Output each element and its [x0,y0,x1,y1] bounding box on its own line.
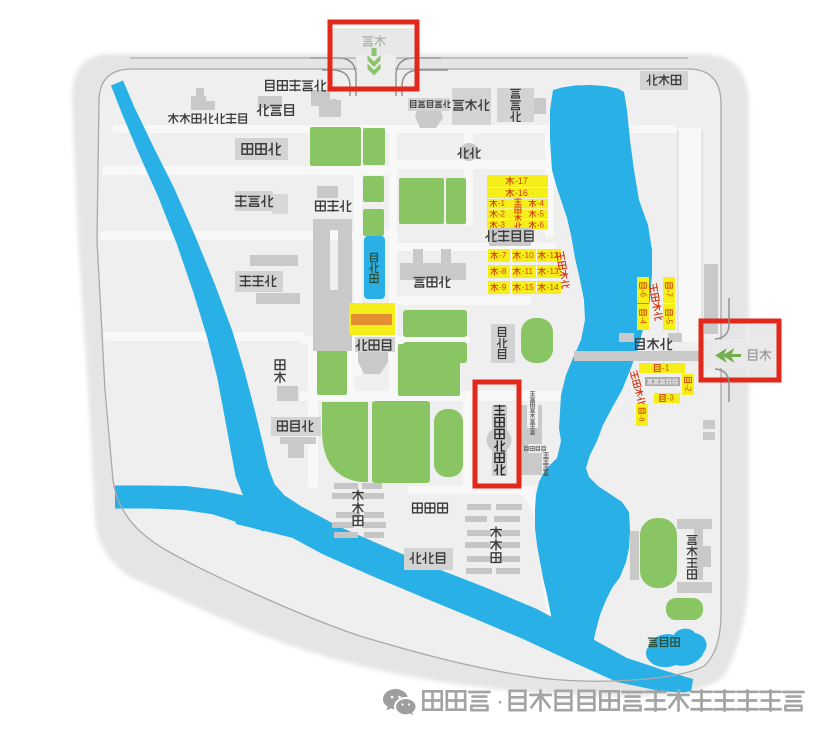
svg-text:-4: -4 [638,317,647,325]
svg-text:-2: -2 [683,384,692,392]
svg-text:-7: -7 [499,250,507,260]
svg-text:-13: -13 [547,266,560,276]
svg-text:-14: -14 [547,282,560,292]
svg-text:-10: -10 [522,250,535,260]
svg-text:-5: -5 [537,210,545,219]
svg-text:-1: -1 [662,363,670,373]
svg-text:-8: -8 [499,266,507,276]
svg-text:-16: -16 [515,188,528,198]
svg-text:-2: -2 [498,210,506,219]
svg-text:-3: -3 [667,394,675,403]
svg-text:-6: -6 [638,290,647,298]
svg-text:-17: -17 [515,176,528,186]
svg-text:-11: -11 [522,266,534,276]
svg-text:-5: -5 [664,317,673,325]
svg-text:-7: -7 [664,290,673,298]
svg-text:-1: -1 [498,199,506,208]
svg-text:-4: -4 [537,199,545,208]
svg-text:-9: -9 [499,282,507,292]
svg-text:-15: -15 [522,282,535,292]
svg-text:·: · [496,688,504,715]
svg-text:-6: -6 [537,221,545,230]
svg-text:-8: -8 [638,415,647,422]
